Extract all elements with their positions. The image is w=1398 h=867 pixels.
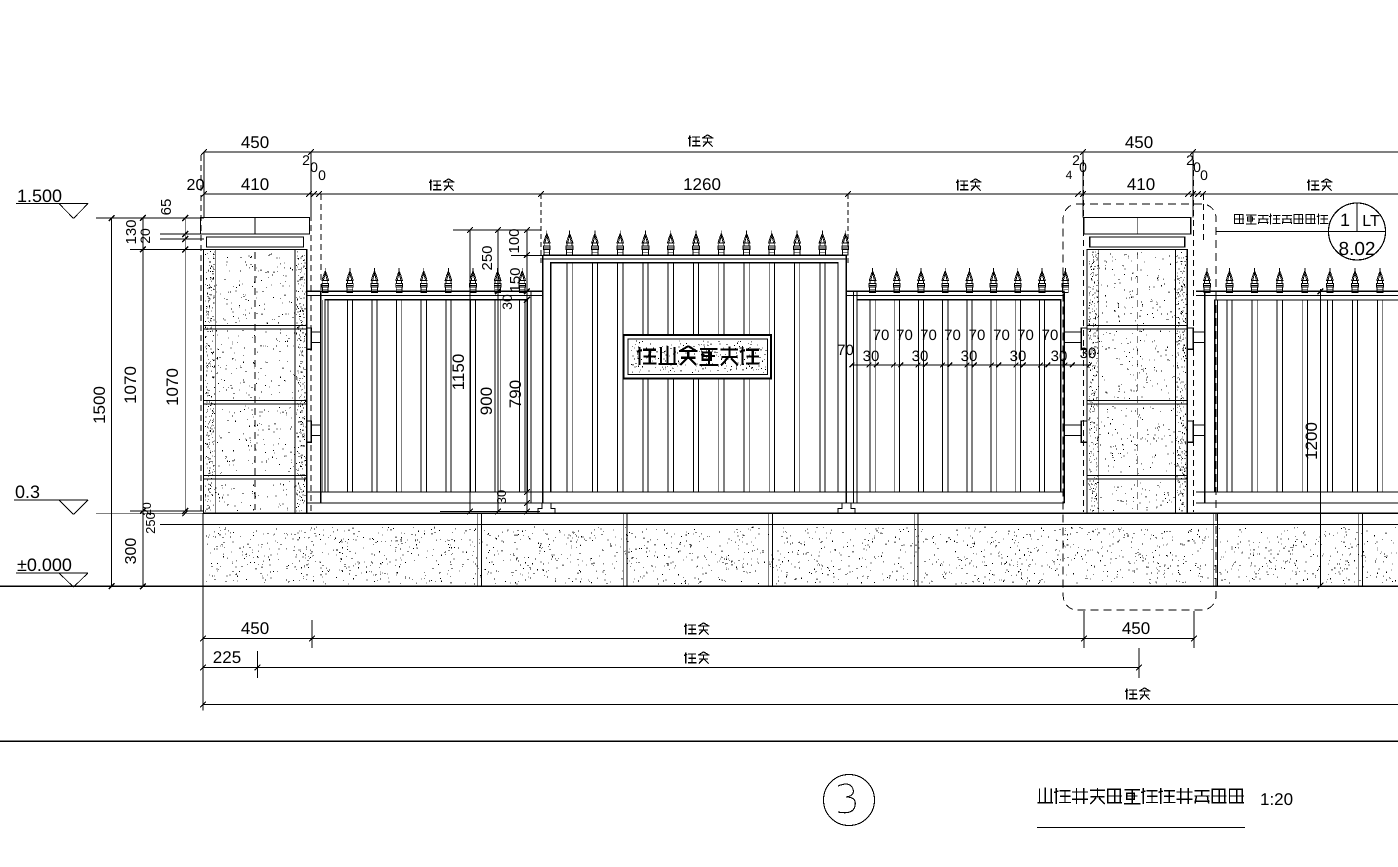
svg-text:450: 450 bbox=[1122, 619, 1150, 638]
svg-text:1260: 1260 bbox=[683, 175, 721, 194]
svg-text:1:20: 1:20 bbox=[1260, 790, 1293, 809]
svg-text:8.02: 8.02 bbox=[1339, 239, 1376, 260]
svg-text:70: 70 bbox=[896, 327, 913, 344]
svg-text:20: 20 bbox=[137, 228, 153, 244]
svg-text:2: 2 bbox=[187, 177, 196, 194]
svg-text:30: 30 bbox=[1010, 348, 1027, 365]
svg-text:70: 70 bbox=[837, 342, 854, 359]
svg-text:70: 70 bbox=[944, 327, 961, 344]
svg-text:1.500: 1.500 bbox=[17, 186, 62, 206]
svg-text:450: 450 bbox=[241, 133, 269, 152]
svg-text:450: 450 bbox=[241, 619, 269, 638]
svg-text:±0.000: ±0.000 bbox=[17, 555, 72, 575]
svg-text:225: 225 bbox=[213, 648, 241, 667]
svg-text:410: 410 bbox=[1127, 175, 1155, 194]
svg-text:900: 900 bbox=[477, 387, 496, 415]
svg-text:30: 30 bbox=[1080, 345, 1097, 362]
svg-text:0: 0 bbox=[318, 167, 326, 183]
svg-text:30: 30 bbox=[499, 294, 515, 310]
svg-text:LT: LT bbox=[1362, 213, 1380, 230]
svg-text:1070: 1070 bbox=[121, 366, 140, 404]
svg-text:1200: 1200 bbox=[1302, 422, 1321, 460]
svg-text:410: 410 bbox=[241, 175, 269, 194]
svg-text:30: 30 bbox=[863, 348, 880, 365]
svg-text:70: 70 bbox=[1017, 327, 1034, 344]
svg-text:30: 30 bbox=[961, 348, 978, 365]
svg-text:4: 4 bbox=[1066, 168, 1073, 182]
svg-text:70: 70 bbox=[993, 327, 1010, 344]
svg-text:70: 70 bbox=[1042, 327, 1059, 344]
svg-text:790: 790 bbox=[506, 380, 525, 408]
svg-text:300: 300 bbox=[123, 538, 140, 565]
svg-text:2: 2 bbox=[302, 152, 310, 168]
svg-text:450: 450 bbox=[1125, 133, 1153, 152]
svg-text:70: 70 bbox=[873, 327, 890, 344]
svg-text:1500: 1500 bbox=[90, 386, 109, 424]
svg-text:0: 0 bbox=[196, 177, 205, 194]
svg-text:70: 70 bbox=[969, 327, 986, 344]
svg-text:1150: 1150 bbox=[449, 354, 468, 391]
svg-text:250: 250 bbox=[479, 245, 496, 270]
svg-text:0.3: 0.3 bbox=[15, 482, 40, 502]
svg-text:1: 1 bbox=[1340, 210, 1350, 230]
svg-text:30: 30 bbox=[494, 490, 509, 504]
svg-text:30: 30 bbox=[1051, 348, 1068, 365]
svg-text:20: 20 bbox=[140, 502, 154, 516]
svg-text:0: 0 bbox=[1200, 167, 1208, 183]
svg-text:150: 150 bbox=[507, 267, 524, 292]
svg-text:65: 65 bbox=[158, 199, 175, 216]
svg-text:100: 100 bbox=[506, 228, 523, 253]
svg-text:30: 30 bbox=[912, 348, 929, 365]
svg-text:70: 70 bbox=[920, 327, 937, 344]
svg-text:1070: 1070 bbox=[163, 368, 182, 406]
